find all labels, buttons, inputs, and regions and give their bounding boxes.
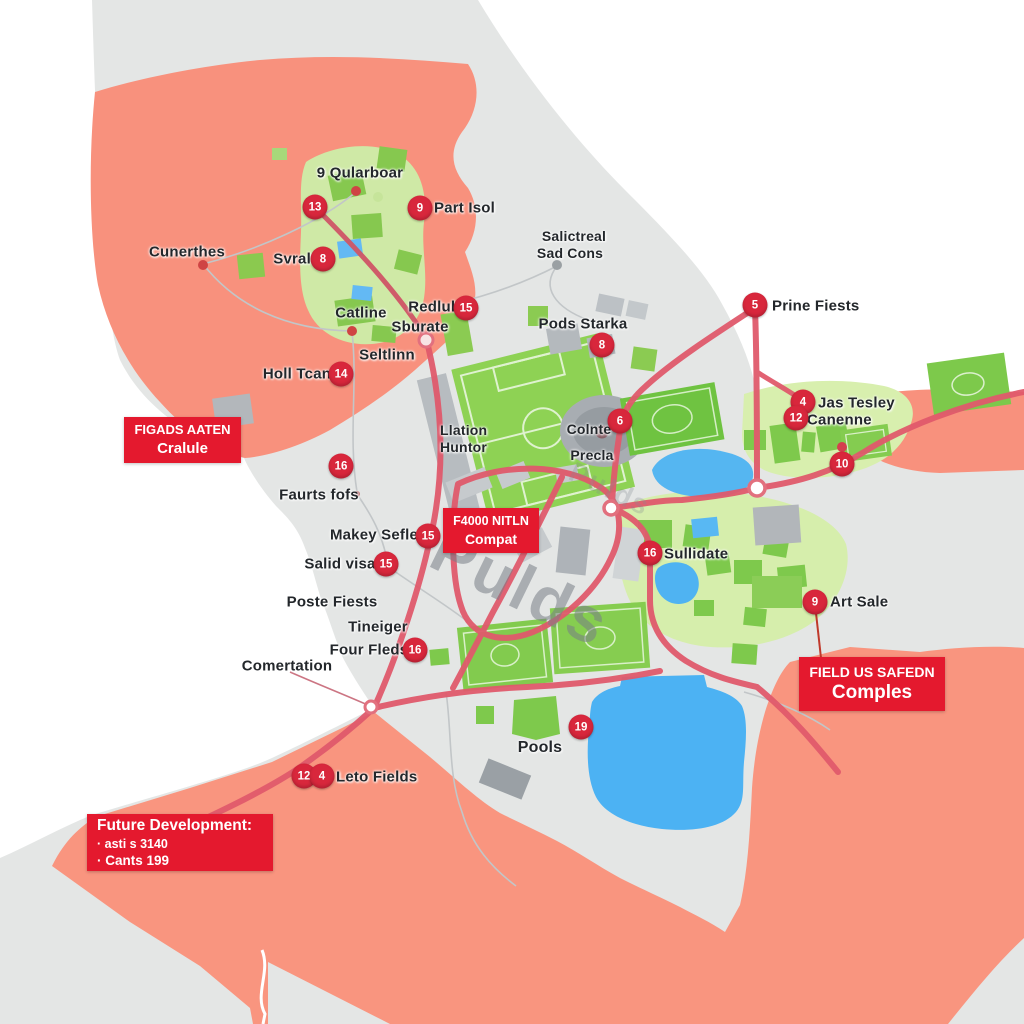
label-art-sale: Art Sale (830, 594, 888, 611)
label-canenne: Canenne (807, 412, 872, 429)
annotation-line: Cralule (157, 439, 208, 459)
map-marker[interactable]: 15 (416, 524, 441, 549)
label-colnte: Colnte (567, 421, 612, 437)
label-tineiger: Tineiger (348, 619, 408, 636)
annotation-box-field-us[interactable]: FIELD US SAFEDN Comples (799, 657, 945, 711)
label-poste-fiests: Poste Fiests (287, 594, 378, 611)
map-marker[interactable]: 8 (590, 333, 615, 358)
label-faurts-fofs: Faurts fofs (279, 487, 359, 504)
label-sburate: Sburate (391, 319, 448, 336)
label-catline: Catline (335, 305, 386, 322)
annotation-line: Future Development: (97, 816, 252, 836)
annotation-line: FIELD US SAFEDN (809, 663, 934, 681)
label-sullidate: Sullidate (664, 546, 728, 563)
map-marker[interactable]: 5 (743, 293, 768, 318)
label-jas-tesley: Jas Tesley (818, 395, 895, 412)
label-leto-fields: Leto Fields (336, 769, 417, 786)
map-marker[interactable]: 13 (303, 195, 328, 220)
label-salid-visa: Salid visa (304, 556, 375, 573)
annotation-line: F4000 NITLN (453, 513, 529, 529)
map-marker[interactable]: 8 (311, 247, 336, 272)
map-marker[interactable]: 10 (830, 452, 855, 477)
map-marker[interactable]: 4 (310, 764, 335, 789)
map-marker[interactable]: 16 (638, 541, 663, 566)
label-comertation: Comertation (242, 658, 333, 675)
annotation-box-figads[interactable]: FIGADS AATEN Cralule (124, 417, 241, 463)
annotation-line: · Cants 199 (97, 852, 169, 870)
map-marker[interactable]: 9 (408, 196, 433, 221)
annotation-box-f4000[interactable]: F4000 NITLN Compat (443, 508, 539, 553)
city-map: Pulds Pulds 13 9 8 15 8 5 14 16 6 4 12 1… (0, 0, 1024, 1024)
map-marker[interactable]: 6 (608, 409, 633, 434)
map-marker[interactable]: 16 (329, 454, 354, 479)
label-seltlinn: Seltlinn (359, 347, 415, 364)
map-marker[interactable]: 9 (803, 590, 828, 615)
map-marker[interactable]: 15 (454, 296, 479, 321)
annotation-line: FIGADS AATEN (134, 422, 230, 439)
label-holl-tcan: Holl Tcan (263, 366, 331, 383)
annotation-box-future-development[interactable]: Future Development: · asti s 3140 · Cant… (87, 814, 273, 871)
map-marker[interactable]: 12 (784, 406, 809, 431)
annotation-line: · asti s 3140 (97, 836, 168, 852)
label-pools: Pools (518, 739, 563, 757)
annotation-line: Compat (465, 530, 517, 548)
label-llation-line1: Llation (440, 422, 487, 438)
label-llation-line2: Huntor (440, 439, 487, 455)
map-marker[interactable]: 14 (329, 362, 354, 387)
label-salictreal-line2: Sad Cons (537, 245, 603, 261)
map-marker[interactable]: 15 (374, 552, 399, 577)
annotation-line: Comples (832, 681, 912, 706)
map-marker[interactable]: 16 (403, 638, 428, 663)
label-cunerthes: Cunerthes (149, 244, 225, 261)
label-salictreal-line1: Salictreal (542, 228, 606, 244)
map-marker[interactable]: 19 (569, 715, 594, 740)
label-four-fleds: Four Fleds (330, 642, 409, 659)
label-qularboar: 9 Qularboar (317, 165, 403, 182)
label-pods-starka: Pods Starka (539, 316, 628, 333)
label-prine-fiests: Prine Fiests (772, 298, 859, 315)
label-makey-sefler: Makey Sefler (330, 527, 424, 544)
label-part-isol: Part Isol (434, 200, 495, 217)
